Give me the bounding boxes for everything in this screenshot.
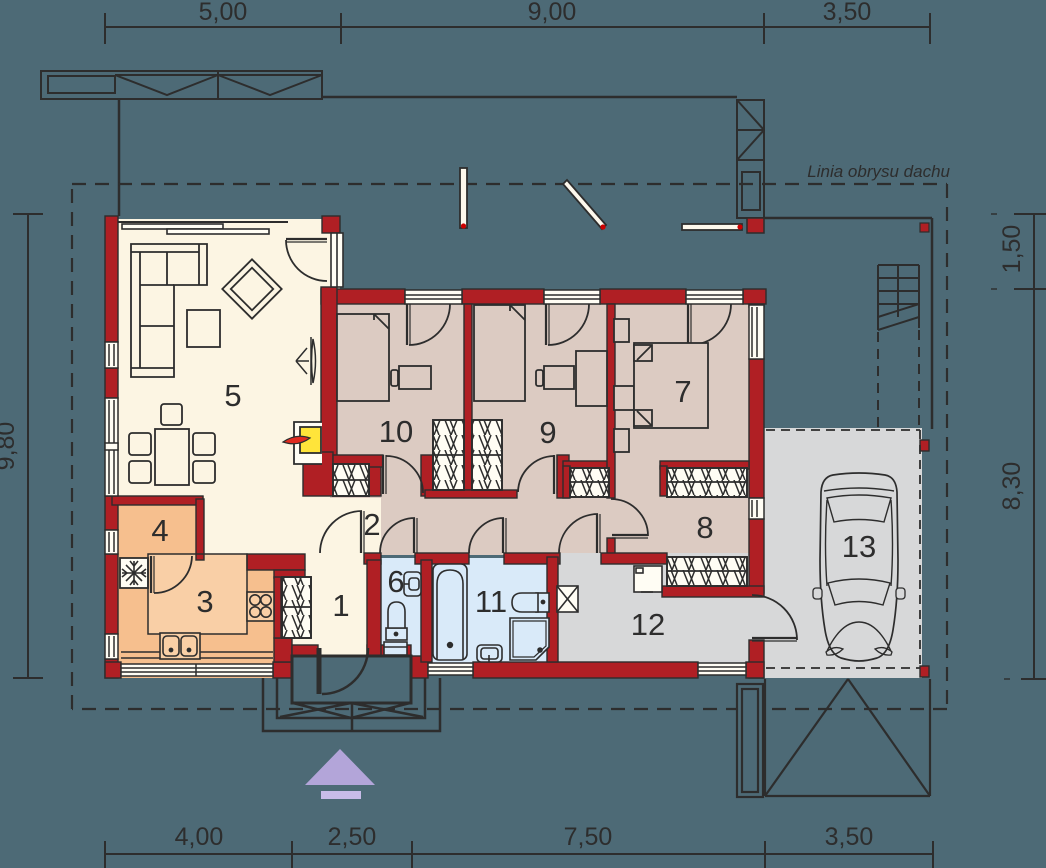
svg-text:6: 6 [387,564,404,599]
svg-text:4,00: 4,00 [175,823,224,851]
svg-text:3,50: 3,50 [823,0,872,26]
svg-text:1,50: 1,50 [998,225,1026,274]
svg-text:7: 7 [674,374,691,409]
svg-text:8,30: 8,30 [998,462,1026,511]
svg-text:5: 5 [224,378,241,413]
svg-text:7,50: 7,50 [564,823,613,851]
svg-text:3,50: 3,50 [825,823,874,851]
svg-text:10: 10 [379,414,413,449]
svg-text:8: 8 [696,510,713,545]
svg-text:5,00: 5,00 [199,0,248,26]
svg-text:9: 9 [539,415,556,450]
svg-text:13: 13 [842,529,876,564]
svg-text:4: 4 [151,513,168,548]
svg-text:3: 3 [196,584,213,619]
svg-text:2,50: 2,50 [328,823,377,851]
svg-text:9,00: 9,00 [528,0,577,26]
svg-text:1: 1 [332,588,349,623]
svg-text:11: 11 [475,584,507,619]
svg-text:9,80: 9,80 [0,422,20,471]
svg-text:12: 12 [631,607,665,642]
svg-text:2: 2 [363,507,380,542]
svg-text:Linia obrysu dachu: Linia obrysu dachu [807,162,950,181]
